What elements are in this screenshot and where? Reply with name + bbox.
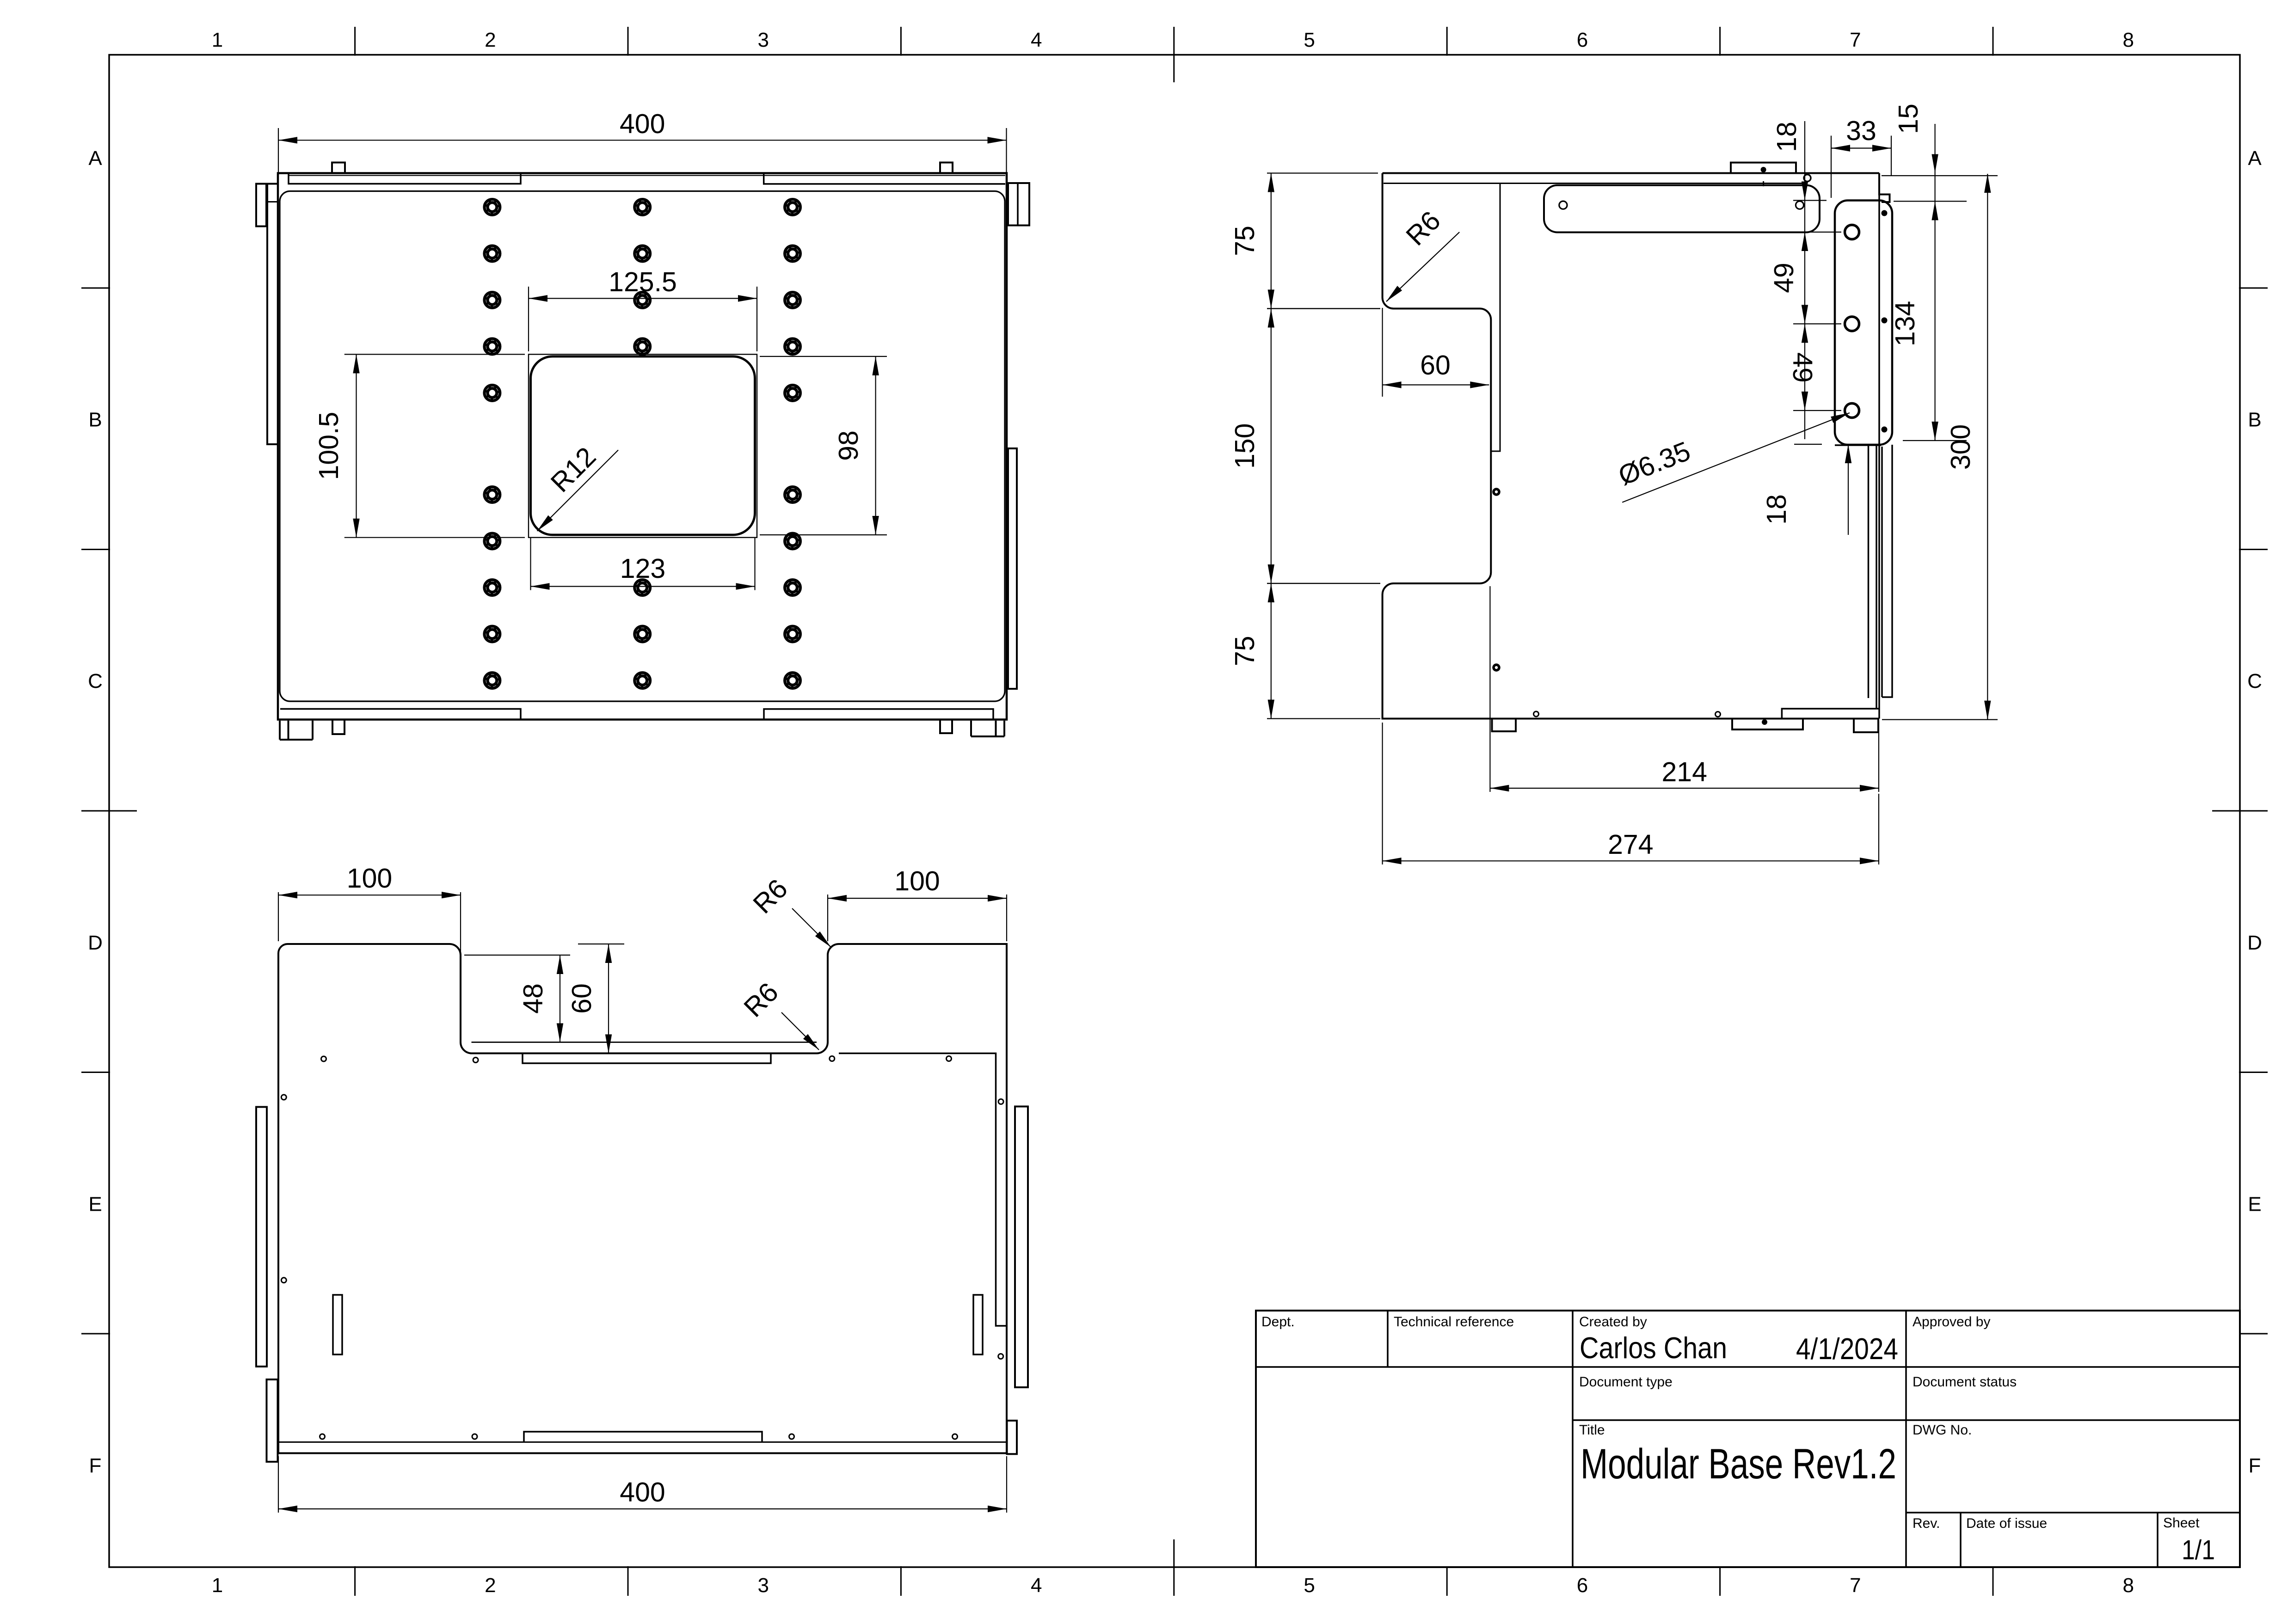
svg-text:R6: R6 [747, 873, 793, 919]
svg-text:Ø6.35: Ø6.35 [1614, 435, 1695, 491]
svg-text:7: 7 [1850, 29, 1861, 51]
svg-text:Document status: Document status [1913, 1374, 2017, 1390]
svg-text:D: D [2247, 932, 2262, 954]
svg-text:5: 5 [1304, 1574, 1315, 1597]
svg-text:Modular Base Rev1.2: Modular Base Rev1.2 [1581, 1440, 1896, 1488]
svg-text:1: 1 [212, 29, 223, 51]
svg-text:7: 7 [1850, 1574, 1861, 1597]
svg-text:6: 6 [1577, 1574, 1588, 1597]
svg-text:Dept.: Dept. [1261, 1314, 1295, 1330]
svg-text:274: 274 [1608, 829, 1653, 860]
svg-text:B: B [2248, 409, 2261, 431]
svg-text:3: 3 [758, 1574, 769, 1597]
svg-text:4: 4 [1031, 1574, 1042, 1597]
svg-text:8: 8 [2123, 1574, 2134, 1597]
svg-text:15: 15 [1893, 104, 1924, 134]
svg-text:Approved by: Approved by [1913, 1314, 1990, 1330]
svg-text:60: 60 [566, 983, 597, 1014]
svg-text:2: 2 [485, 29, 496, 51]
svg-text:Created by: Created by [1579, 1314, 1647, 1330]
svg-text:150: 150 [1230, 423, 1260, 469]
svg-text:100.5: 100.5 [314, 412, 344, 480]
svg-text:B: B [88, 409, 102, 431]
svg-text:18: 18 [1771, 122, 1802, 152]
svg-text:R6: R6 [1400, 205, 1446, 251]
svg-text:400: 400 [620, 109, 665, 139]
svg-text:4: 4 [1031, 29, 1042, 51]
svg-text:D: D [88, 932, 103, 954]
svg-text:3: 3 [758, 29, 769, 51]
svg-text:Title: Title [1579, 1422, 1605, 1438]
svg-text:75: 75 [1230, 636, 1260, 666]
svg-text:49: 49 [1769, 263, 1799, 293]
svg-text:A: A [88, 147, 102, 170]
svg-text:4/1/2024: 4/1/2024 [1796, 1332, 1898, 1366]
svg-text:1: 1 [212, 1574, 223, 1597]
svg-text:125.5: 125.5 [609, 267, 677, 297]
svg-text:R12: R12 [545, 441, 602, 498]
svg-text:8: 8 [2123, 29, 2134, 51]
svg-text:33: 33 [1846, 116, 1876, 146]
svg-text:214: 214 [1661, 757, 1707, 787]
svg-text:R6: R6 [738, 977, 784, 1023]
svg-text:Document type: Document type [1579, 1374, 1673, 1390]
svg-text:49: 49 [1787, 352, 1818, 383]
svg-text:Technical reference: Technical reference [1394, 1314, 1514, 1330]
svg-text:18: 18 [1761, 494, 1792, 525]
svg-text:1/1: 1/1 [2182, 1535, 2215, 1565]
svg-text:100: 100 [347, 863, 392, 894]
svg-text:5: 5 [1304, 29, 1315, 51]
svg-text:F: F [89, 1454, 102, 1477]
svg-text:Sheet: Sheet [2163, 1515, 2200, 1531]
svg-text:123: 123 [620, 553, 665, 584]
svg-text:134: 134 [1890, 301, 1920, 346]
svg-text:DWG No.: DWG No. [1913, 1422, 1972, 1438]
svg-text:100: 100 [894, 866, 940, 896]
svg-text:2: 2 [485, 1574, 496, 1597]
svg-text:Rev.: Rev. [1913, 1516, 1940, 1531]
svg-text:E: E [88, 1193, 102, 1215]
svg-text:48: 48 [518, 983, 548, 1014]
svg-text:F: F [2249, 1454, 2261, 1477]
svg-text:98: 98 [833, 430, 864, 461]
svg-text:C: C [88, 670, 103, 692]
svg-text:A: A [2248, 147, 2262, 170]
svg-text:60: 60 [1420, 350, 1451, 380]
svg-text:Carlos Chan: Carlos Chan [1580, 1331, 1727, 1365]
svg-text:6: 6 [1577, 29, 1588, 51]
svg-text:300: 300 [1945, 424, 1976, 470]
svg-text:400: 400 [620, 1477, 665, 1508]
svg-text:Date of issue: Date of issue [1966, 1516, 2047, 1531]
svg-text:C: C [2247, 670, 2262, 692]
svg-text:75: 75 [1230, 226, 1260, 256]
svg-text:E: E [2248, 1193, 2261, 1215]
